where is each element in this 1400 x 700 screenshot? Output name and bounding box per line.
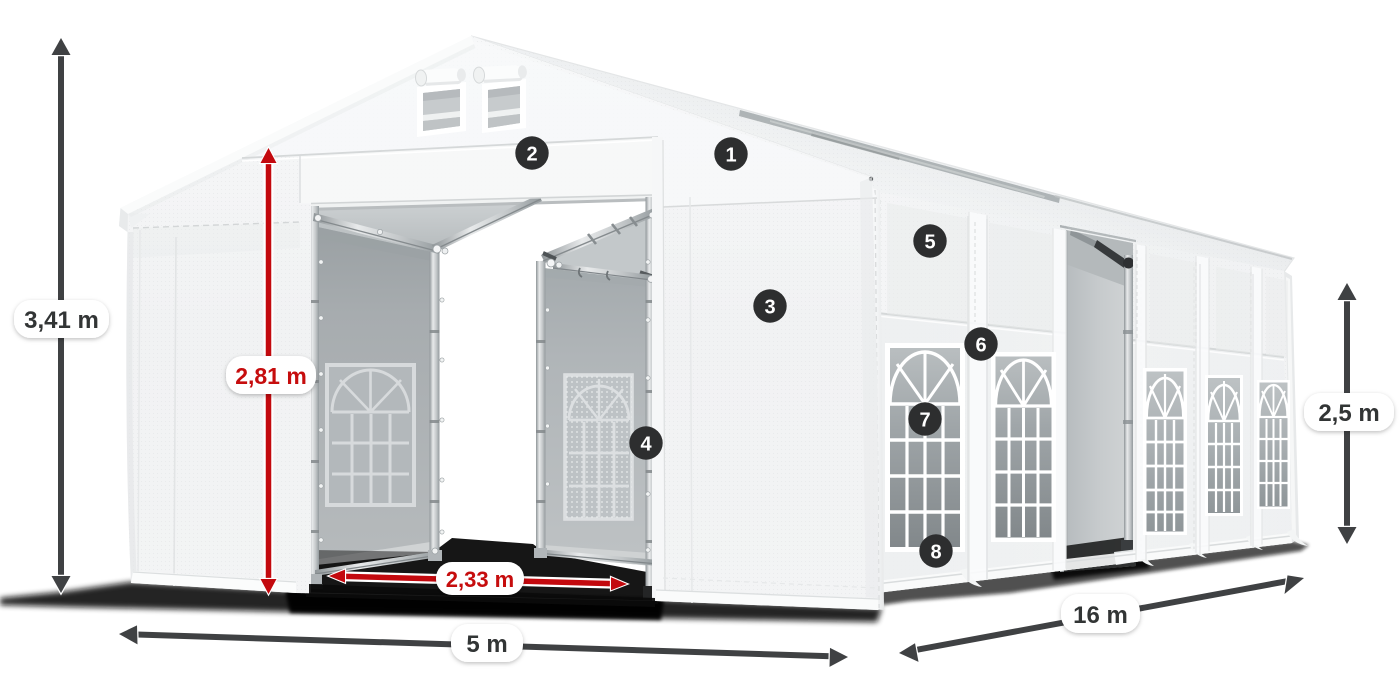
svg-text:7: 7 <box>919 410 930 432</box>
svg-text:2,5 m: 2,5 m <box>1318 400 1379 427</box>
svg-text:3,41 m: 3,41 m <box>24 307 99 334</box>
svg-text:2: 2 <box>526 144 537 166</box>
svg-text:1: 1 <box>725 145 736 167</box>
svg-text:8: 8 <box>930 542 941 564</box>
svg-text:5 m: 5 m <box>466 631 507 658</box>
svg-text:2,81 m: 2,81 m <box>235 363 307 389</box>
svg-text:4: 4 <box>640 434 652 456</box>
svg-text:6: 6 <box>975 335 986 357</box>
svg-text:2,33 m: 2,33 m <box>446 567 515 592</box>
svg-text:3: 3 <box>764 297 775 319</box>
svg-text:16 m: 16 m <box>1073 602 1128 629</box>
svg-text:5: 5 <box>924 232 935 254</box>
